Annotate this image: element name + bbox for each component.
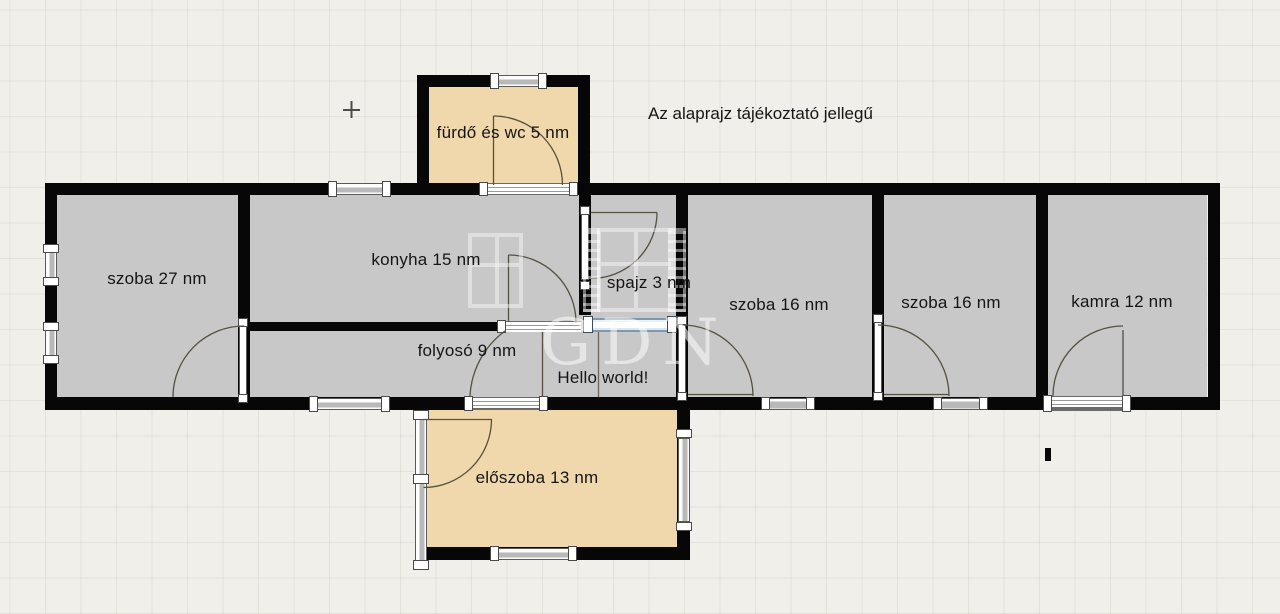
door-leaf-szoba16a[interactable] — [678, 324, 686, 393]
wall-furdo-right[interactable] — [578, 75, 590, 183]
window-post — [490, 73, 499, 89]
window-eloszoba-right[interactable] — [678, 438, 690, 522]
window-post — [676, 522, 692, 531]
window-post — [43, 244, 59, 253]
room-label-eloszoba: előszoba 13 nm — [476, 468, 599, 488]
window-szoba27-lower[interactable] — [45, 330, 57, 356]
window-post — [933, 397, 942, 410]
room-label-spajz: spajz 3 nm — [607, 273, 691, 293]
doorway-kamra-post-left — [1043, 395, 1052, 412]
selected-wall-post — [583, 316, 593, 333]
door-post — [677, 392, 687, 401]
room-label-konyha: konyha 15 nm — [371, 250, 480, 270]
room-label-folyoso: folyosó 9 nm — [418, 341, 517, 361]
window-post — [43, 322, 59, 331]
wall-furdo-left[interactable] — [417, 75, 429, 183]
door-leaf-szoba27[interactable] — [239, 326, 247, 395]
window-eloszoba-bottom[interactable] — [498, 548, 569, 560]
crosshair-marker — [343, 101, 360, 118]
window-post — [43, 355, 59, 364]
room-label-szoba16b: szoba 16 nm — [901, 293, 1001, 313]
room-label-kamra: kamra 12 nm — [1071, 292, 1172, 312]
doorway-entrance-post-left — [464, 396, 473, 411]
window-post — [538, 73, 547, 89]
wall-konyha-folyoso[interactable] — [250, 322, 501, 331]
wall-main-left[interactable] — [45, 183, 57, 410]
door-post — [238, 394, 248, 403]
doorway-furdo-post-right — [569, 182, 578, 196]
door-leaf-szoba16b[interactable] — [874, 322, 882, 393]
floorplan-canvas[interactable]: GDN fürdő és wc 5 nm szoba 27 nm konyha … — [0, 0, 1280, 614]
window-furdo-top[interactable] — [498, 75, 540, 87]
door-post — [677, 316, 687, 325]
door-leaf-spajz[interactable] — [581, 214, 589, 280]
window-post — [568, 546, 577, 561]
disclaimer-text: Az alaprajz tájékoztató jellegű — [648, 104, 873, 124]
room-label-furdo: fürdő és wc 5 nm — [437, 123, 570, 143]
window-post — [413, 474, 429, 484]
window-post — [413, 560, 429, 570]
window-konyha-top[interactable] — [336, 183, 384, 195]
window-post — [490, 546, 499, 561]
door-post — [873, 392, 883, 401]
doorway-kamra-sill[interactable] — [1050, 396, 1126, 411]
doorway-kamra-post-right — [1122, 395, 1131, 412]
door-post — [580, 206, 590, 215]
note-hello-world: Hello world! — [557, 368, 648, 388]
room-label-szoba27: szoba 27 nm — [107, 269, 207, 289]
doorway-furdo-post-left — [479, 182, 488, 196]
window-szoba27-upper[interactable] — [45, 252, 57, 278]
wall-szoba16b-kamra[interactable] — [1036, 195, 1048, 397]
doorway-entrance-sill[interactable] — [472, 397, 544, 410]
window-post — [309, 396, 318, 412]
wall-stub[interactable] — [1045, 448, 1051, 461]
selected-wall-post — [667, 316, 677, 333]
window-eloszoba-left-upper[interactable] — [415, 419, 427, 475]
window-eloszoba-left-lower[interactable] — [415, 483, 427, 561]
doorway-konyha-post — [497, 320, 506, 333]
window-post — [761, 397, 770, 410]
doorway-konyha-sill[interactable] — [503, 321, 581, 332]
window-post — [382, 181, 391, 197]
doorway-furdo-sill[interactable] — [487, 183, 570, 195]
window-post — [676, 429, 692, 438]
wall-main-right[interactable] — [1208, 183, 1220, 410]
window-post — [413, 410, 429, 420]
window-post — [328, 181, 337, 197]
window-post — [43, 277, 59, 286]
window-post — [381, 396, 390, 412]
door-post — [580, 281, 590, 290]
wall-main-top[interactable] — [45, 183, 1220, 195]
window-folyoso-bottom[interactable] — [317, 398, 382, 410]
doorway-entrance-post-right — [539, 396, 548, 411]
room-label-szoba16a: szoba 16 nm — [729, 295, 829, 315]
selected-wall-spajz-bottom[interactable] — [592, 318, 668, 332]
window-post — [806, 397, 815, 410]
door-post — [873, 314, 883, 323]
window-post — [979, 397, 988, 410]
door-post — [238, 318, 248, 327]
